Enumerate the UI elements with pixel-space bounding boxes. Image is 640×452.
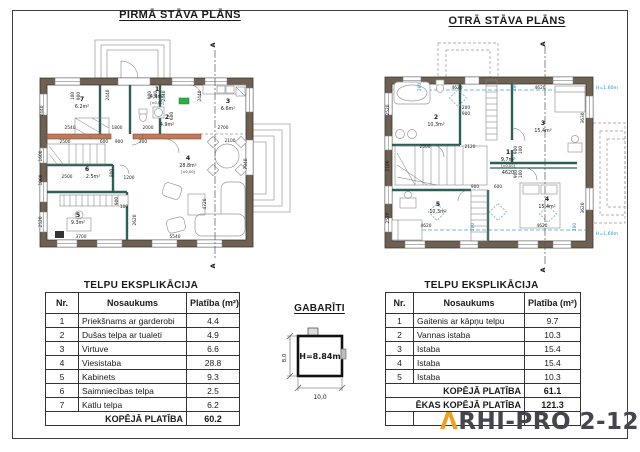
svg-text:4620: 4620 (452, 85, 463, 91)
svg-text:6.6m²: 6.6m² (221, 106, 235, 112)
svg-text:1600: 1600 (38, 150, 44, 161)
svg-text:2500: 2500 (60, 139, 71, 145)
table-row: 3Istaba15.4 (386, 342, 581, 356)
svg-text:[±0,00]: [±0,00] (181, 170, 195, 174)
table-row: 1Priekšnams ar garderobi4.4 (46, 314, 240, 328)
svg-text:15,4m²: 15,4m² (538, 204, 555, 210)
svg-text:28.8m²: 28.8m² (179, 163, 196, 169)
svg-text:2520: 2520 (38, 216, 44, 227)
table-row: 4Viesistaba28.8 (46, 356, 240, 370)
svg-text:[±0,00]: [±0,00] (501, 164, 515, 168)
total-row: KOPĒJĀ PLATĪBA 60.2 (46, 412, 240, 426)
svg-text:100: 100 (120, 204, 128, 210)
table-row: 7Katlu telpa6.2 (46, 398, 240, 412)
svg-text:100: 100 (518, 170, 524, 178)
total-value: 61.1 (525, 384, 581, 398)
svg-text:2.5m²: 2.5m² (86, 174, 100, 180)
svg-text:2620: 2620 (132, 214, 138, 225)
svg-text:15,4m²: 15,4m² (534, 128, 551, 134)
svg-text:200: 200 (462, 105, 470, 111)
table-row: 5Istaba10.3 (386, 370, 581, 384)
svg-text:2000: 2000 (143, 125, 154, 131)
svg-text:280: 280 (572, 223, 578, 231)
second-floor-title: OTRĀ STĀVA PLĀNS (415, 15, 599, 27)
table-row: 4Istaba15.4 (386, 356, 581, 370)
svg-text:1200: 1200 (124, 175, 135, 181)
table-row: 3Virtuve6.6 (46, 342, 240, 356)
svg-text:7940: 7940 (243, 158, 249, 169)
svg-text:A: A (209, 263, 217, 268)
svg-text:2520: 2520 (385, 104, 391, 115)
svg-text:600: 600 (169, 112, 175, 120)
table-row: 2Dušas telpa ar tualeti4.9 (46, 328, 240, 342)
svg-text:2100: 2100 (225, 138, 236, 144)
svg-text:3630: 3630 (580, 112, 586, 123)
table-row: 1Gaitenis ar kāpņu telpu9.7 (386, 314, 581, 328)
svg-text:4620: 4620 (535, 85, 546, 91)
svg-text:4620: 4620 (421, 223, 432, 229)
printer-icon (55, 231, 64, 238)
logo-text: RHI-PRO 2-121 (458, 409, 640, 435)
svg-text:2440: 2440 (161, 90, 167, 101)
svg-text:9.3m²: 9.3m² (71, 220, 85, 226)
svg-text:600: 600 (494, 184, 502, 190)
total-label: KOPĒJĀ PLATĪBA (386, 384, 525, 398)
svg-text:2500: 2500 (420, 144, 431, 150)
svg-text:5: 5 (76, 212, 80, 219)
svg-text:2540: 2540 (65, 125, 76, 131)
first-floor-title: PIRMĀ STĀVA PLĀNS (88, 9, 272, 21)
svg-text:2700: 2700 (218, 125, 229, 131)
svg-text:4: 4 (545, 196, 550, 203)
total-label: KOPĒJĀ PLATĪBA (46, 412, 187, 426)
svg-text:100: 100 (518, 146, 524, 154)
width-dim: 10,0 (313, 394, 327, 401)
svg-text:H=1,60m: H=1,60m (596, 231, 619, 237)
svg-text:4620: 4620 (537, 223, 548, 229)
svg-text:A: A (209, 42, 217, 47)
svg-text:800: 800 (109, 169, 115, 177)
svg-text:2440: 2440 (197, 90, 203, 101)
svg-text:5540: 5540 (170, 234, 181, 240)
svg-text:1: 1 (506, 149, 510, 156)
first-floor-plan: A A 7 6.2m² 1 4.4m² [±0,00] 2 4.9m² 3 6.… (25, 32, 305, 270)
col-header-area: Platība (m²) (187, 293, 240, 314)
svg-text:3700: 3700 (76, 234, 87, 240)
svg-text:600: 600 (100, 139, 108, 145)
svg-text:4620: 4620 (502, 170, 514, 176)
svg-text:10,3m²: 10,3m² (427, 122, 444, 128)
table-row: 6Saimniecības telpa2.5 (46, 384, 240, 398)
gabariti-title: GABARĪTI (262, 303, 377, 314)
terrace-steps (253, 124, 290, 212)
svg-text:280: 280 (417, 83, 423, 91)
svg-text:1000: 1000 (38, 174, 44, 185)
stove-icon (179, 98, 189, 104)
table-row: 5Kabinets9.3 (46, 370, 240, 384)
logo: ΛRHI-PRO 2-121 (440, 409, 626, 435)
second-floor-table-title: TELPU EKSPLIKĀCIJA (385, 280, 578, 291)
svg-text:10,3m²: 10,3m² (429, 209, 446, 215)
svg-text:9,7m²: 9,7m² (501, 157, 515, 163)
entrance-porch (95, 40, 170, 78)
svg-text:900: 900 (76, 92, 82, 100)
svg-text:2: 2 (165, 114, 169, 121)
svg-text:900: 900 (471, 184, 479, 190)
svg-text:2500: 2500 (62, 174, 73, 180)
first-floor-table-title: TELPU EKSPLIKĀCIJA (45, 280, 237, 291)
section-line-a: A A (539, 41, 547, 272)
col-header-name: Nosaukums (414, 293, 525, 314)
svg-text:6: 6 (85, 166, 89, 173)
second-floor-room-table: Nr. Nosaukums Platība (m²) 1Gaitenis ar … (385, 292, 581, 426)
col-header-nr: Nr. (386, 293, 414, 314)
svg-text:4: 4 (186, 155, 191, 162)
svg-text:900: 900 (462, 111, 470, 117)
svg-text:2100: 2100 (385, 160, 391, 171)
svg-text:100: 100 (153, 91, 159, 99)
svg-text:280: 280 (470, 223, 476, 231)
svg-text:2520: 2520 (385, 212, 391, 223)
svg-text:2440: 2440 (105, 89, 111, 100)
svg-text:2: 2 (434, 114, 438, 121)
col-header-area: Platība (m²) (525, 293, 581, 314)
svg-text:2120: 2120 (465, 144, 476, 150)
gabariti-diagram: H=8.84m 8,0 10,0 (262, 318, 377, 410)
svg-text:6.2m²: 6.2m² (75, 104, 89, 110)
svg-text:4.9m²: 4.9m² (160, 122, 174, 128)
svg-text:900: 900 (114, 197, 120, 205)
svg-text:280: 280 (512, 83, 518, 91)
total-row: KOPĒJĀ PLATĪBA 61.1 (386, 384, 581, 398)
svg-text:5: 5 (436, 201, 440, 208)
svg-text:100: 100 (70, 92, 76, 100)
logo-mark-icon: Λ (440, 409, 458, 435)
col-header-nr: Nr. (46, 293, 79, 314)
svg-text:2440: 2440 (39, 105, 45, 116)
col-header-name: Nosaukums (79, 293, 187, 314)
depth-dim: 8,0 (282, 353, 288, 362)
svg-text:3620: 3620 (580, 202, 586, 213)
svg-text:1800: 1800 (112, 125, 123, 131)
svg-text:A: A (539, 267, 547, 272)
building-height: H=8.84m (299, 352, 340, 361)
svg-text:900: 900 (147, 91, 153, 99)
svg-text:3: 3 (541, 120, 545, 127)
svg-text:300: 300 (139, 139, 147, 145)
first-floor-room-table: Nr. Nosaukums Platība (m²) 1Priekšnams a… (45, 292, 240, 426)
lintel-beams (47, 134, 201, 139)
drawing-sheet: PIRMĀ STĀVA PLĀNS OTRĀ STĀVA PLĀNS (0, 0, 640, 452)
total-value: 60.2 (187, 412, 240, 426)
svg-text:4720: 4720 (202, 198, 208, 209)
table-row: 2Vannas istaba10.3 (386, 328, 581, 342)
svg-text:900: 900 (115, 139, 123, 145)
svg-text:H=1,60m: H=1,60m (596, 85, 619, 91)
second-floor-plan: H=1,60m H=1,60m (370, 38, 640, 273)
svg-text:3: 3 (226, 98, 230, 105)
svg-text:A: A (539, 41, 547, 46)
